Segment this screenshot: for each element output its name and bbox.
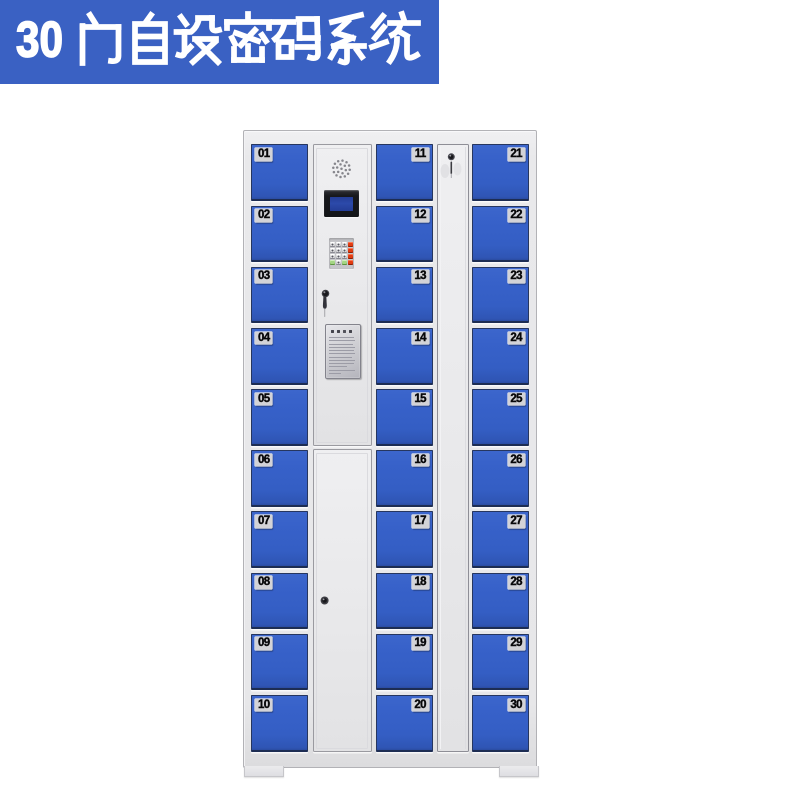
svg-text:30: 30 xyxy=(16,12,63,68)
